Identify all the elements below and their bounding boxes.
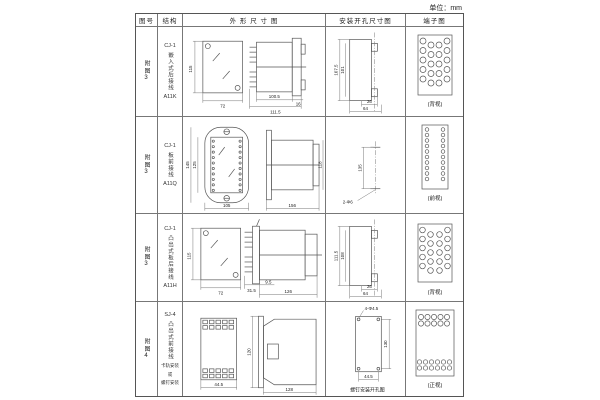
outline-drawing-cell: 115 72 100.5 16 <box>183 27 326 117</box>
mounting-drawing-cell: 135 2-Φ6 <box>326 117 406 214</box>
terminal-drawing: (背视) <box>406 214 463 302</box>
dim-label: 31.5 <box>247 287 256 292</box>
dim-label: 26 <box>367 284 372 289</box>
dim-label: 72 <box>220 103 225 108</box>
dim-label: 44.5 <box>214 382 223 387</box>
dim-label: 118 <box>318 160 323 168</box>
terminal-drawing-cell: (背视) <box>406 27 463 117</box>
mounting-drawing: 4-Φ4.5 130 44.5 螺钉安装开孔图 <box>326 302 405 396</box>
dim-label: 130 <box>383 340 388 348</box>
structure-name: 凸出式前接线 <box>166 321 174 360</box>
hole-label: 4-Φ4.5 <box>365 306 379 311</box>
unit-label: 单位：mm <box>392 3 462 13</box>
structure-code: A11K <box>163 94 176 100</box>
structure-code: A11H <box>163 283 176 289</box>
outline-drawing: 145 125 105 156 118 <box>183 117 325 214</box>
dim-label: 120 <box>247 348 252 356</box>
dim-label: 126 <box>285 289 293 294</box>
figure-no: 附图3 <box>142 60 151 83</box>
structure-cell: CJ-1 嵌入式后接线 A11K <box>158 27 183 117</box>
header-terminal: 端子图 <box>406 14 463 27</box>
dim-label: 16 <box>296 101 301 106</box>
dim-label: 115 <box>188 64 193 72</box>
mounting-drawing: 135 2-Φ6 <box>326 117 405 214</box>
dim-label: 111.5 <box>270 109 281 114</box>
structure-model: SJ-4 <box>164 312 175 318</box>
terminal-drawing-cell: (正视) <box>406 302 463 396</box>
dim-label: 135 <box>358 163 363 171</box>
figure-no: 附图3 <box>142 154 151 177</box>
structure-name: 板前接线 <box>166 152 174 178</box>
terminal-drawing-cell: (前视) <box>406 117 463 214</box>
terminal-view-label: (前视) <box>428 194 443 202</box>
dim-label: 44.5 <box>364 374 373 379</box>
structure-name: 嵌入式后接线 <box>166 52 174 91</box>
dim-label: 125 <box>192 160 197 168</box>
structure-cell: CJ-1 凸出式板后接线 A11H <box>158 214 183 302</box>
dim-label: 128 <box>286 387 294 392</box>
structure-note: 或 <box>168 372 173 378</box>
dim-label: 115 <box>186 251 191 259</box>
mounting-drawing: 107.5 101 26 64 <box>326 27 405 117</box>
figure-no-cell: 附图4 <box>136 302 158 396</box>
drawing-table: 图号 结构 外 形 尺 寸 图 安装开孔尺寸图 端子图 附图3 CJ-1 嵌入式… <box>135 13 464 397</box>
figure-no-cell: 附图3 <box>136 214 158 302</box>
dim-label: 26 <box>367 99 372 104</box>
structure-code: A11Q <box>163 181 177 187</box>
dim-label: 107.5 <box>333 63 338 75</box>
structure-cell: CJ-1 板前接线 A11Q <box>158 117 183 214</box>
mounting-drawing-cell: 111.5 108 26 64 <box>326 214 406 302</box>
dim-label: 100.5 <box>269 93 281 98</box>
structure-name: 凸出式板后接线 <box>166 235 174 281</box>
dim-label: 105 <box>223 203 231 208</box>
structure-note: 卡轨安装 <box>161 363 179 369</box>
structure-note: 螺钉安装 <box>161 380 179 386</box>
header-figure-no: 图号 <box>136 14 158 27</box>
structure-model: CJ-1 <box>164 143 176 149</box>
outline-drawing-cell: 145 125 105 156 118 <box>183 117 326 214</box>
terminal-drawing: (正视) <box>406 302 463 396</box>
outline-drawing: 115 72 100.5 16 <box>183 27 325 117</box>
figure-no-cell: 附图3 <box>136 27 158 117</box>
hole-label: 2-Φ6 <box>343 199 353 204</box>
dim-label: 64 <box>363 291 368 296</box>
dim-label: 9.5 <box>265 279 272 284</box>
terminal-drawing: (背视) <box>406 27 463 117</box>
structure-model: CJ-1 <box>164 226 176 232</box>
dim-label: 72 <box>218 290 223 295</box>
terminal-drawing-cell: (背视) <box>406 214 463 302</box>
mounting-drawing-cell: 4-Φ4.5 130 44.5 螺钉安装开孔图 <box>326 302 406 396</box>
terminal-view-label: (背视) <box>428 288 443 296</box>
outline-drawing: 44.5 120 128 <box>183 302 325 396</box>
structure-model: CJ-1 <box>164 43 176 49</box>
dim-label: 64 <box>363 106 368 111</box>
outline-drawing: 115 72 31.5 9.5 <box>183 214 325 302</box>
header-structure: 结构 <box>158 14 183 27</box>
terminal-view-label: (背视) <box>428 100 443 108</box>
dim-label: 101 <box>340 65 345 73</box>
figure-no-cell: 附图3 <box>136 117 158 214</box>
terminal-drawing: (前视) <box>406 117 463 214</box>
dim-label: 145 <box>185 160 190 168</box>
header-mounting: 安装开孔尺寸图 <box>326 14 406 27</box>
document-page: 单位：mm 图号 结构 外 形 尺 寸 图 安装开孔尺寸图 端子图 附图3 CJ… <box>0 0 600 400</box>
dim-label: 111.5 <box>333 250 338 261</box>
mounting-drawing: 111.5 108 26 64 <box>326 214 405 302</box>
outline-drawing-cell: 115 72 31.5 9.5 <box>183 214 326 302</box>
mounting-caption: 螺钉安装开孔图 <box>350 386 385 393</box>
terminal-view-label: (正视) <box>428 381 443 389</box>
dim-label: 156 <box>289 203 297 208</box>
outline-drawing-cell: 44.5 120 128 <box>183 302 326 396</box>
figure-no: 附图4 <box>142 338 151 361</box>
header-outline: 外 形 尺 寸 图 <box>183 14 326 27</box>
mounting-drawing-cell: 107.5 101 26 64 <box>326 27 406 117</box>
figure-no: 附图3 <box>142 246 151 269</box>
structure-cell: SJ-4 凸出式前接线 卡轨安装 或 螺钉安装 <box>158 302 183 396</box>
dim-label: 108 <box>340 251 345 259</box>
